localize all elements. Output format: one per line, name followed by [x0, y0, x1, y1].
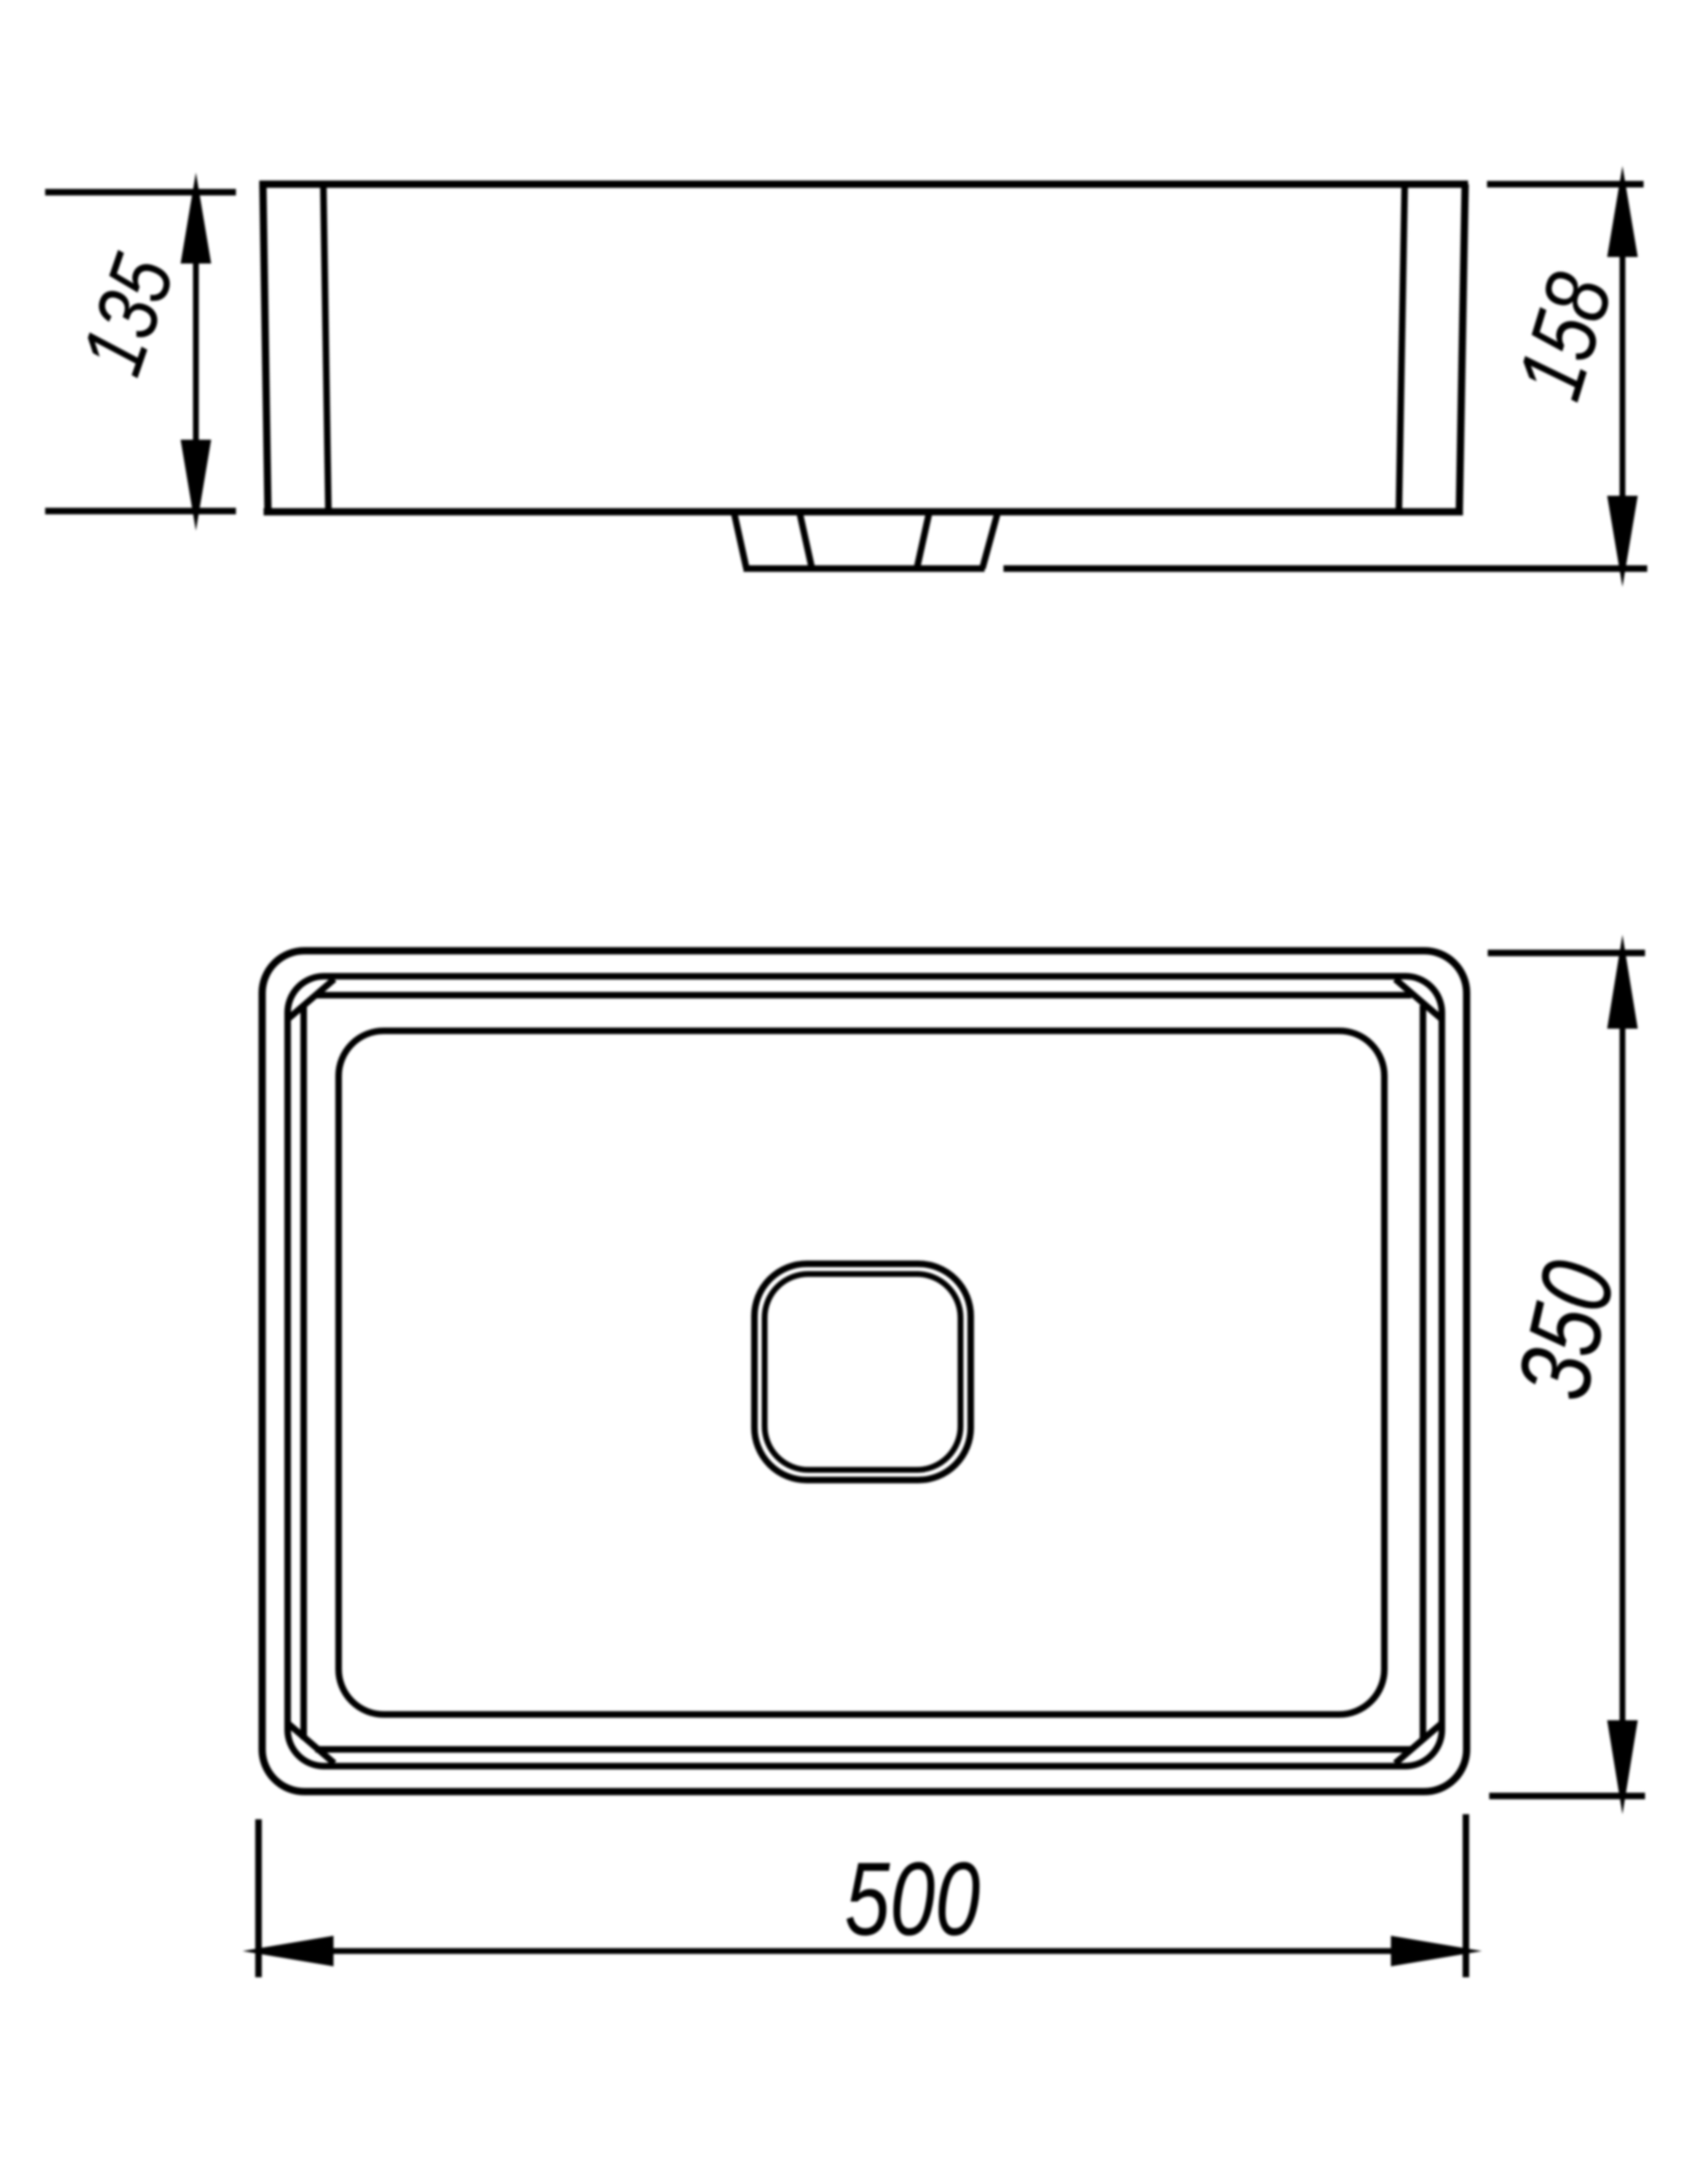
svg-text:500: 500: [845, 1841, 980, 1957]
svg-text:350: 350: [1495, 1251, 1637, 1409]
svg-text:158: 158: [1498, 262, 1633, 410]
svg-text:135: 135: [63, 244, 194, 386]
